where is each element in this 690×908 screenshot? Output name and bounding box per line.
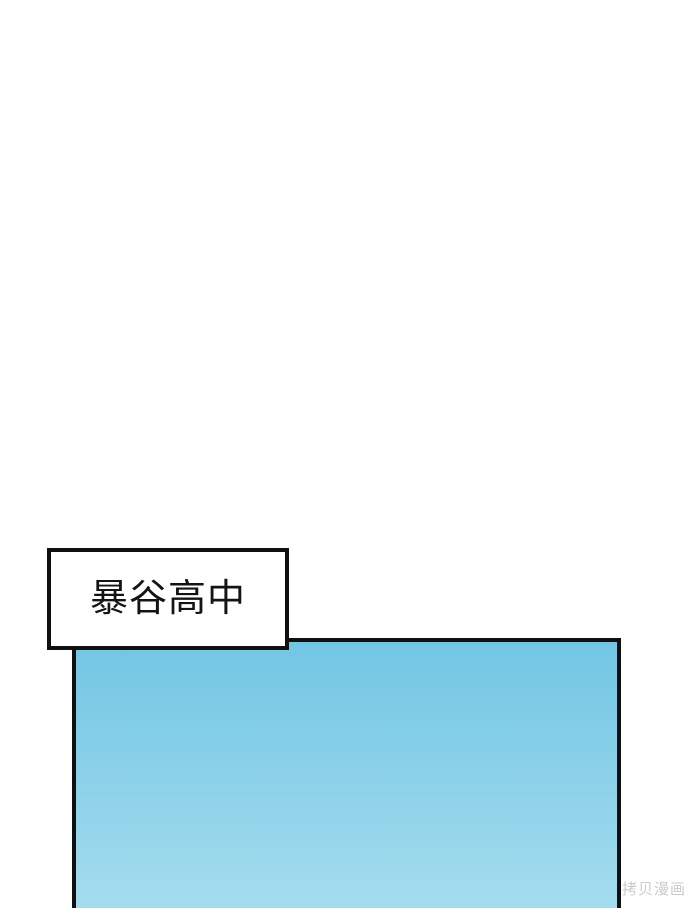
sky-panel [72, 638, 621, 908]
location-label-box: 暴谷高中 [47, 548, 289, 650]
comic-page: 暴谷高中 拷贝漫画 [0, 0, 690, 908]
location-label-text: 暴谷高中 [90, 580, 246, 618]
site-watermark: 拷贝漫画 [622, 882, 686, 897]
